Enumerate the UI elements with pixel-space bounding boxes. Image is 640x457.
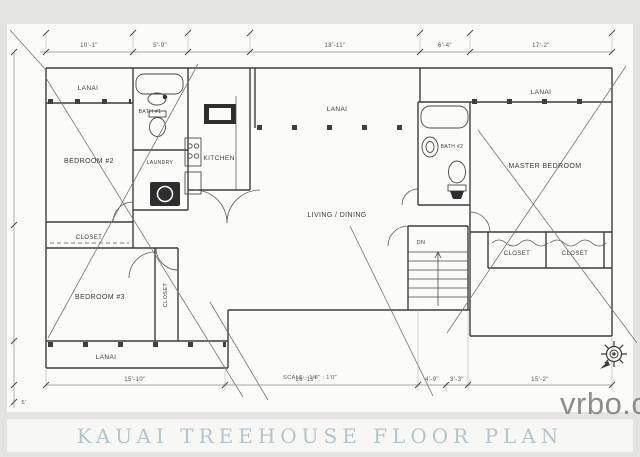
plan-title: KAUAI TREEHOUSE FLOOR PLAN <box>0 424 640 448</box>
floor-plan-photo: LANAI BEDROOM #2 BATH #1 LAUNDRY KITCHEN… <box>0 0 640 457</box>
north-compass-icon <box>600 341 627 369</box>
label-bath-1: BATH #1 <box>139 109 162 115</box>
bath2-fixtures <box>421 106 468 199</box>
washer-icon <box>150 182 180 206</box>
floor-plan-drawing: LANAI BEDROOM #2 BATH #1 LAUNDRY KITCHEN… <box>0 0 640 457</box>
label-closet-bedroom3-top: CLOSET <box>76 235 102 241</box>
label-lanai-bottom: LANAI <box>96 354 117 361</box>
label-bedroom-3: BEDROOM #3 <box>75 294 125 301</box>
stove-top-icon <box>209 108 231 120</box>
vrbo-watermark: vrbo.com <box>560 386 640 422</box>
sink-icon <box>148 93 166 105</box>
label-kitchen: KITCHEN <box>203 155 234 162</box>
bath1-fixtures <box>136 74 183 137</box>
dim-top-1: 10'-1" <box>80 43 98 49</box>
label-closet-hall-2: CLOSET <box>562 251 588 257</box>
label-closet-hall-1: CLOSET <box>504 251 530 257</box>
dim-bottom-5: 15'-2" <box>531 377 549 383</box>
label-closet-bedroom3-side: CLOSET <box>163 283 169 308</box>
pedestal-sink-icon <box>422 137 438 157</box>
dim-top-5: 17'-2" <box>532 43 550 49</box>
dim-top-3: 18'-11" <box>325 43 346 49</box>
toilet-tank-icon <box>448 185 466 191</box>
bathtub-icon <box>421 106 468 128</box>
toilet-icon <box>449 161 466 183</box>
label-lanai-top-right: LANAI <box>531 89 552 96</box>
bathtub-icon <box>136 74 183 94</box>
label-master-bedroom: MASTER BEDROOM <box>509 163 582 170</box>
dim-bottom-1: 15'-10" <box>124 377 145 383</box>
dim-top-4: 6'-4" <box>438 43 452 49</box>
faucet-icon <box>163 95 167 99</box>
label-bath-2: BATH #2 <box>441 144 464 150</box>
label-lanai-top-left: LANAI <box>78 85 99 92</box>
dim-bottom-3: 4'-9" <box>425 377 439 383</box>
dim-left-corner: 5' <box>22 400 27 406</box>
laundry-fixtures <box>150 182 180 206</box>
staircase <box>408 252 468 306</box>
dim-bottom-4: 3'-3" <box>450 377 464 383</box>
kitchen-fixtures <box>185 96 236 194</box>
label-laundry: LAUNDRY <box>147 160 174 166</box>
label-stairs-dn: DN <box>417 240 426 246</box>
label-lanai-center: LANAI <box>327 106 348 113</box>
scale-note: SCALE - 1/8" : 1'0" <box>283 375 337 381</box>
label-bedroom-2: BEDROOM #2 <box>64 158 114 165</box>
dim-top-2: 5'-9" <box>153 43 167 49</box>
label-living-dining: LIVING / DINING <box>307 212 366 219</box>
